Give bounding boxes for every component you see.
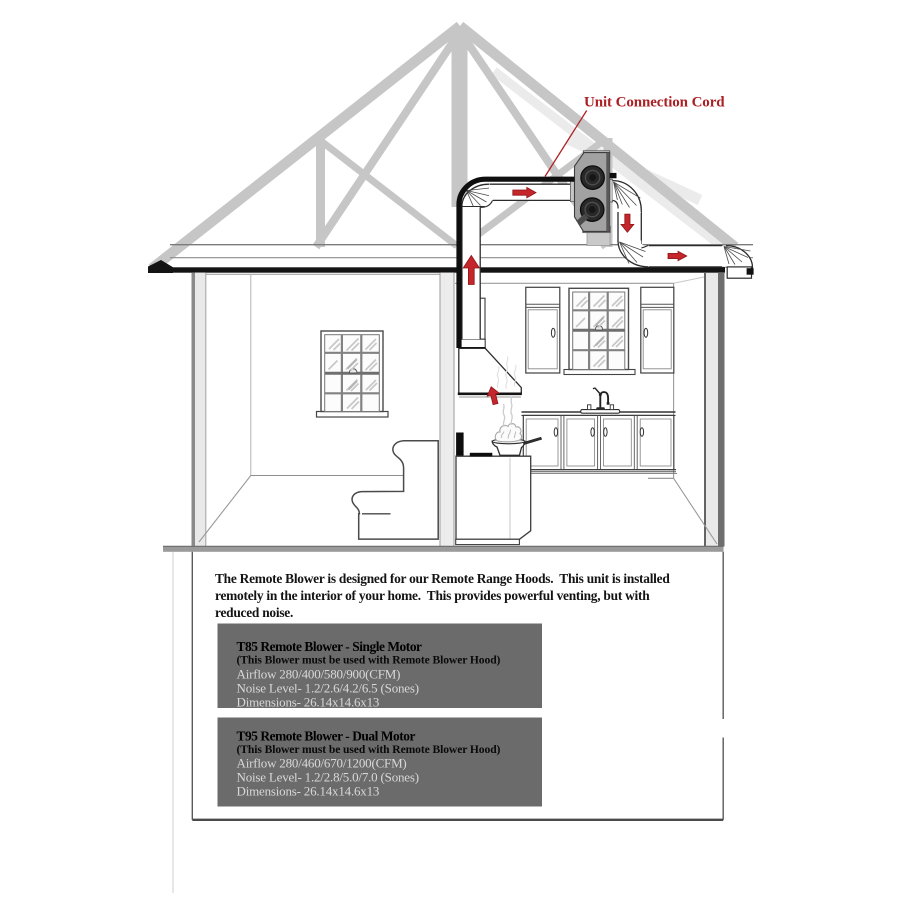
svg-text:Dimensions- 26.14x14.6x13: Dimensions- 26.14x14.6x13	[237, 783, 380, 798]
svg-text:The Remote Blower is designed: The Remote Blower is designed for our Re…	[215, 571, 670, 586]
svg-text:Airflow 280/460/670/1200(CFM): Airflow 280/460/670/1200(CFM)	[237, 756, 407, 771]
svg-text:(This Blower must be used with: (This Blower must be used with Remote Bl…	[237, 743, 501, 756]
svg-text:reduced noise.: reduced noise.	[215, 605, 293, 620]
svg-text:remotely in the interior of yo: remotely in the interior of your home. T…	[215, 588, 650, 603]
svg-text:Noise Level- 1.2/2.6/4.2/6.5 (: Noise Level- 1.2/2.6/4.2/6.5 (Sones)	[237, 681, 419, 696]
svg-text:Unit Connection Cord: Unit Connection Cord	[584, 95, 725, 111]
svg-text:(This Blower must be used with: (This Blower must be used with Remote Bl…	[237, 654, 501, 667]
svg-text:T85 Remote Blower - Single Mot: T85 Remote Blower - Single Motor	[237, 639, 423, 654]
svg-text:Noise Level- 1.2/2.8/5.0/7.0 (: Noise Level- 1.2/2.8/5.0/7.0 (Sones)	[237, 770, 419, 785]
svg-text:Airflow 280/400/580/900(CFM): Airflow 280/400/580/900(CFM)	[237, 667, 401, 682]
svg-text:Dimensions- 26.14x14.6x13: Dimensions- 26.14x14.6x13	[237, 694, 380, 709]
svg-text:T95 Remote Blower - Dual Motor: T95 Remote Blower - Dual Motor	[237, 729, 416, 744]
